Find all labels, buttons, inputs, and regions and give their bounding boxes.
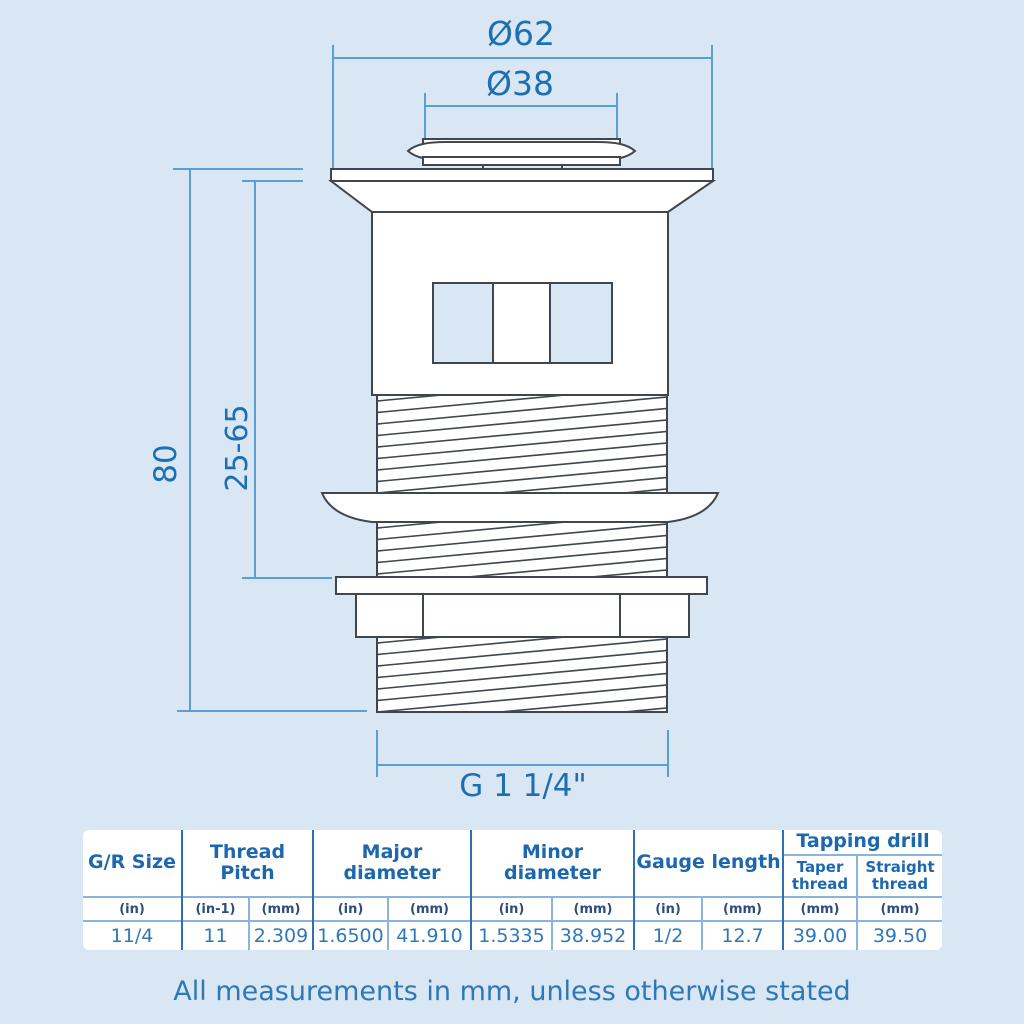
slotted-body [372, 212, 668, 395]
col-header-minor-diameter: Minor diameter [471, 830, 634, 897]
dim-label-outer-diameter: Ø62 [487, 14, 555, 53]
col-header-gauge-length: Gauge length [634, 830, 783, 897]
dim-label-overall-length: 80 [148, 444, 184, 483]
unit-cell: (mm) [249, 897, 313, 921]
value-cell-minor-mm: 38.952 [552, 921, 634, 950]
value-cell-gauge-in: 1/2 [634, 921, 702, 950]
col-header-tapping-drill: Tapping drill [783, 830, 942, 855]
value-cell-major-in: 1.6500 [313, 921, 388, 950]
unit-cell: (in) [313, 897, 388, 921]
product-dimension-sheet: Ø62 Ø38 80 25-65 G 1 1/4" [0, 0, 1024, 1024]
dim-label-thread-size: G 1 1/4" [459, 768, 587, 804]
value-cell-major-mm: 41.910 [388, 921, 471, 950]
measurement-note: All measurements in mm, unless otherwise… [0, 976, 1024, 1007]
top-flange [331, 169, 713, 212]
sealing-washer [322, 493, 718, 522]
col-header-major-diameter: Major diameter [313, 830, 471, 897]
spec-table-panel: G/R Size Thread Pitch Major diameter Min… [83, 830, 942, 950]
unit-cell: (mm) [388, 897, 471, 921]
value-cell-pitch-mm: 2.309 [249, 921, 313, 950]
backnut [336, 577, 707, 637]
col-header-thread-pitch: Thread Pitch [182, 830, 313, 897]
dim-label-plug-diameter: Ø38 [486, 64, 554, 103]
value-cell-gr-size: 11/4 [83, 921, 182, 950]
value-cell-taper-mm: 39.00 [783, 921, 857, 950]
unit-cell: (mm) [702, 897, 783, 921]
technical-drawing: Ø62 Ø38 80 25-65 G 1 1/4" [0, 0, 1024, 820]
overflow-slot-left [434, 284, 492, 362]
unit-cell: (mm) [857, 897, 942, 921]
unit-cell: (mm) [783, 897, 857, 921]
value-cell-pitch-in: 11 [182, 921, 249, 950]
subcol-header-taper-thread: Taper thread [783, 855, 857, 897]
unit-cell: (in) [83, 897, 182, 921]
waste-fitting [322, 139, 718, 735]
value-cell-straight-mm: 39.50 [857, 921, 942, 950]
dim-label-clamp-range: 25-65 [220, 404, 255, 491]
thread-spec-table: G/R Size Thread Pitch Major diameter Min… [83, 830, 942, 950]
unit-cell: (in) [471, 897, 552, 921]
col-header-gr-size: G/R Size [83, 830, 182, 897]
subcol-header-straight-thread: Straight thread [857, 855, 942, 897]
overflow-slot-right [551, 284, 611, 362]
pop-up-plug [408, 139, 635, 169]
value-cell-minor-in: 1.5335 [471, 921, 552, 950]
value-cell-gauge-mm: 12.7 [702, 921, 783, 950]
unit-cell: (in) [634, 897, 702, 921]
unit-cell: (in-1) [182, 897, 249, 921]
unit-cell: (mm) [552, 897, 634, 921]
